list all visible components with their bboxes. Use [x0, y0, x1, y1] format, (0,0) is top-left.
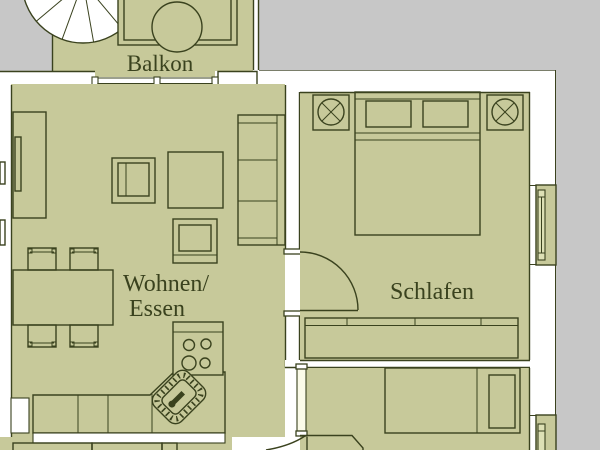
door-jamb — [296, 364, 307, 369]
partition-wall — [284, 84, 301, 368]
cabinet — [13, 112, 46, 218]
room-balcony: Balkon — [22, 0, 259, 77]
room-label-living-line1: Wohnen/ — [123, 271, 209, 297]
floor-plan: Balkon — [0, 0, 600, 450]
kitchen-appliance — [11, 398, 29, 433]
room-label-bedroom: Schlafen — [390, 279, 474, 305]
balcony-round-table — [152, 2, 202, 52]
stove — [173, 322, 223, 375]
window-pane — [538, 424, 545, 450]
room-bedroom: Schlafen — [300, 92, 556, 360]
dining-table — [13, 270, 113, 325]
living-floor — [11, 84, 285, 437]
room-label-balcony: Balkon — [127, 51, 194, 76]
bottom-room-floor — [300, 368, 530, 450]
room-bottom — [266, 364, 556, 450]
room-label-living-line2: Essen — [129, 296, 185, 322]
bottom-wall — [33, 433, 225, 443]
floor-plan-canvas: Balkon — [0, 0, 600, 450]
door-jamb — [284, 249, 301, 254]
door-jamb — [284, 311, 301, 316]
room-living-dining: Wohnen/ Essen — [0, 84, 285, 450]
door-leaf — [297, 368, 306, 431]
wall-below-bedroom — [285, 360, 530, 368]
